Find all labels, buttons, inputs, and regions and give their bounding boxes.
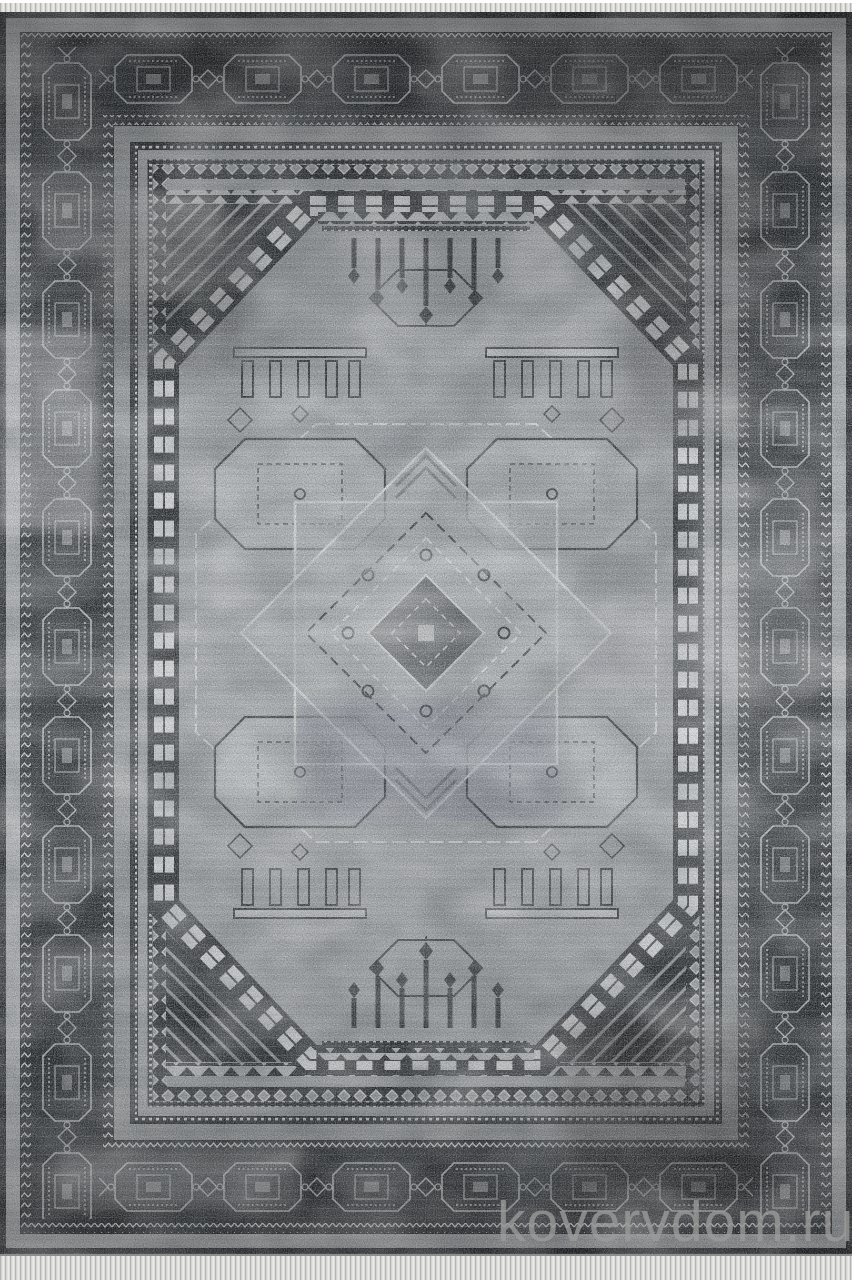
rug-product-photo: kovervdom.ru xyxy=(0,0,852,1280)
rug-fringe-top xyxy=(0,0,852,12)
rug-fringe-bottom xyxy=(0,1254,852,1280)
tone-gradient xyxy=(0,12,852,1254)
rug-illustration xyxy=(0,0,852,1280)
